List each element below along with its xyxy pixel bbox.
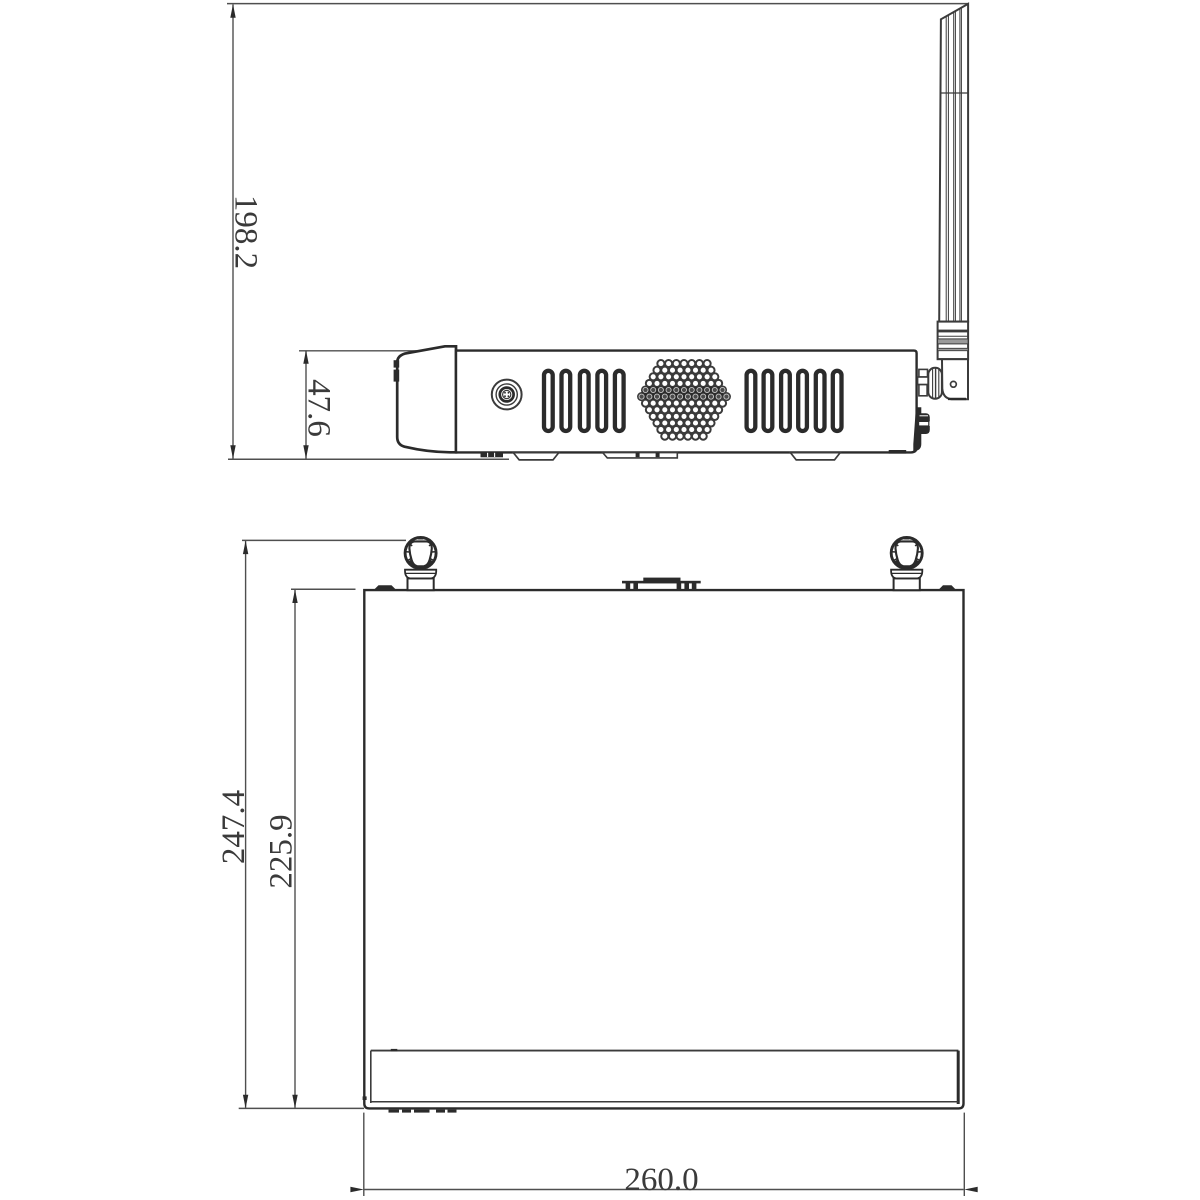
svg-text:247.4: 247.4 [216, 790, 252, 864]
svg-text:47.6: 47.6 [301, 379, 337, 437]
svg-text:198.2: 198.2 [228, 195, 264, 269]
svg-text:260.0: 260.0 [624, 1162, 698, 1198]
svg-text:225.9: 225.9 [264, 814, 300, 888]
